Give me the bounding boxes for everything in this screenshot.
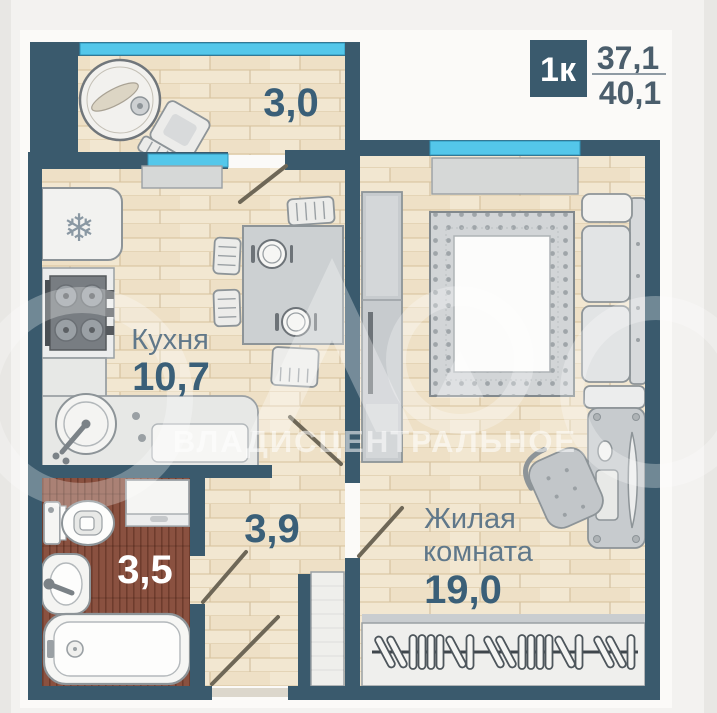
hallway-cabinet: [311, 572, 344, 686]
balcony-table: [80, 60, 160, 140]
balcony-glazing: [80, 43, 345, 55]
snowflake-icon: ❄: [63, 208, 95, 250]
kitchen-name-label: Кухня: [131, 324, 209, 356]
kitchen-window: [148, 154, 228, 167]
hallway-area-label: 3,9: [244, 507, 300, 551]
bathroom-sink: [42, 554, 90, 614]
bathtub: [44, 614, 190, 684]
kitchen-windowsill: [142, 166, 222, 188]
wardrobe: [362, 614, 645, 686]
living-windowsill: [432, 158, 578, 194]
right-edge-band: [704, 0, 717, 713]
bathroom-area-label: 3,5: [117, 548, 173, 592]
badge-area-bottom: 40,1: [599, 75, 661, 111]
badge-rooms-label: 1к: [540, 51, 577, 89]
living-room-area-label: 19,0: [424, 568, 502, 612]
balcony-area-label: 3,0: [263, 81, 319, 125]
floor-plan-image: ❄: [0, 0, 717, 713]
hallway-wall-stub: [298, 574, 311, 686]
badge-area-top: 37,1: [597, 40, 659, 76]
living-room-name-line2: комната: [423, 536, 534, 568]
fridge: ❄: [42, 188, 122, 260]
floor-plan-svg: ❄: [0, 0, 717, 713]
watermark-text: ВЛАДИСЦЕНТРАЛЬНОЕ: [173, 424, 577, 459]
living-window: [430, 141, 580, 155]
living-room-name-line1: Жилая: [424, 503, 516, 535]
entrance-threshold: [212, 688, 288, 697]
kitchen-area-label: 10,7: [132, 355, 210, 399]
